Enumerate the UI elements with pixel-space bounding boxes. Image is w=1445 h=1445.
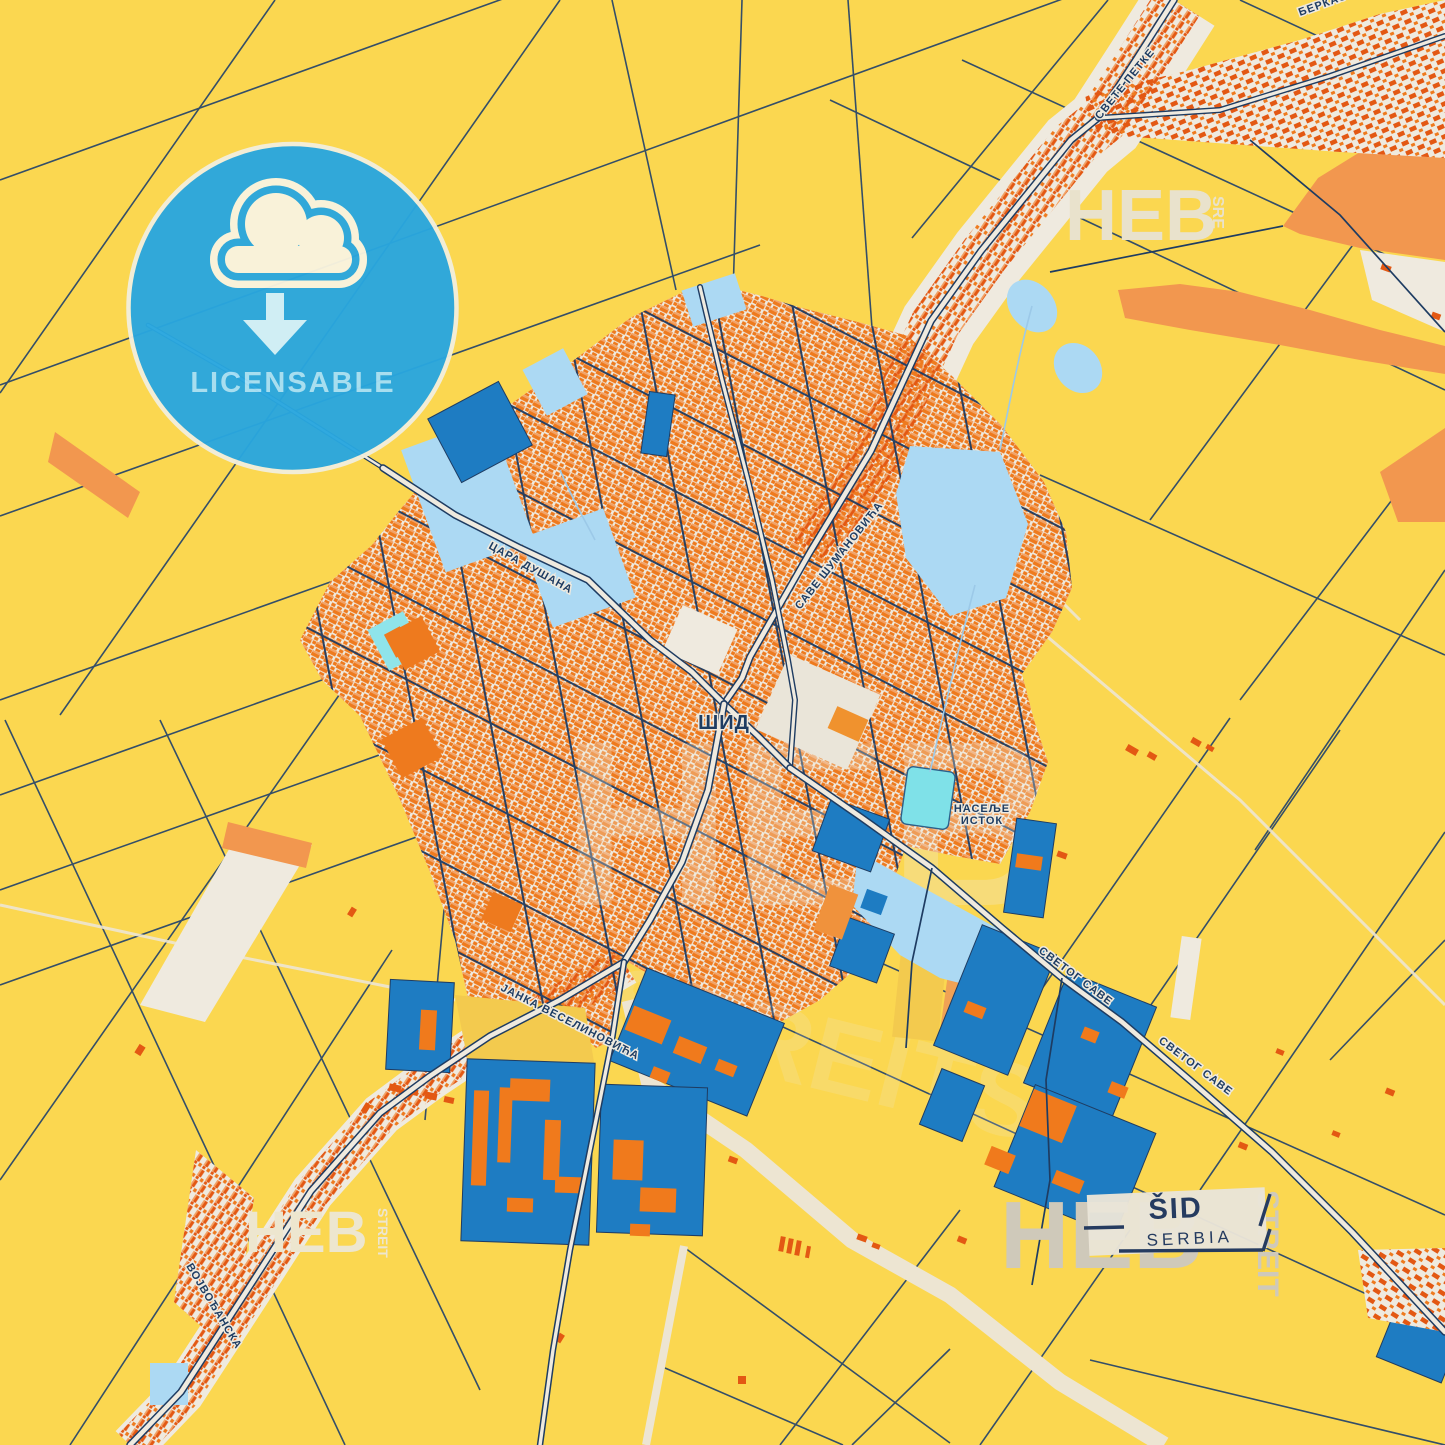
svg-text:HEB: HEB xyxy=(1065,176,1217,256)
svg-text:НАСЕЉЕ: НАСЕЉЕ xyxy=(954,803,1010,815)
svg-text:ИСТОК: ИСТОК xyxy=(961,815,1003,827)
svg-text:SERBIA: SERBIA xyxy=(1146,1227,1233,1250)
svg-text:ШИД: ШИД xyxy=(698,712,750,734)
svg-text:ŠID: ŠID xyxy=(1148,1190,1204,1226)
svg-text:LICENSABLE: LICENSABLE xyxy=(190,367,395,399)
svg-text:STREIT: STREIT xyxy=(375,1208,391,1258)
svg-text:SRE: SRE xyxy=(1209,196,1226,229)
svg-text:HEB: HEB xyxy=(245,1200,367,1265)
